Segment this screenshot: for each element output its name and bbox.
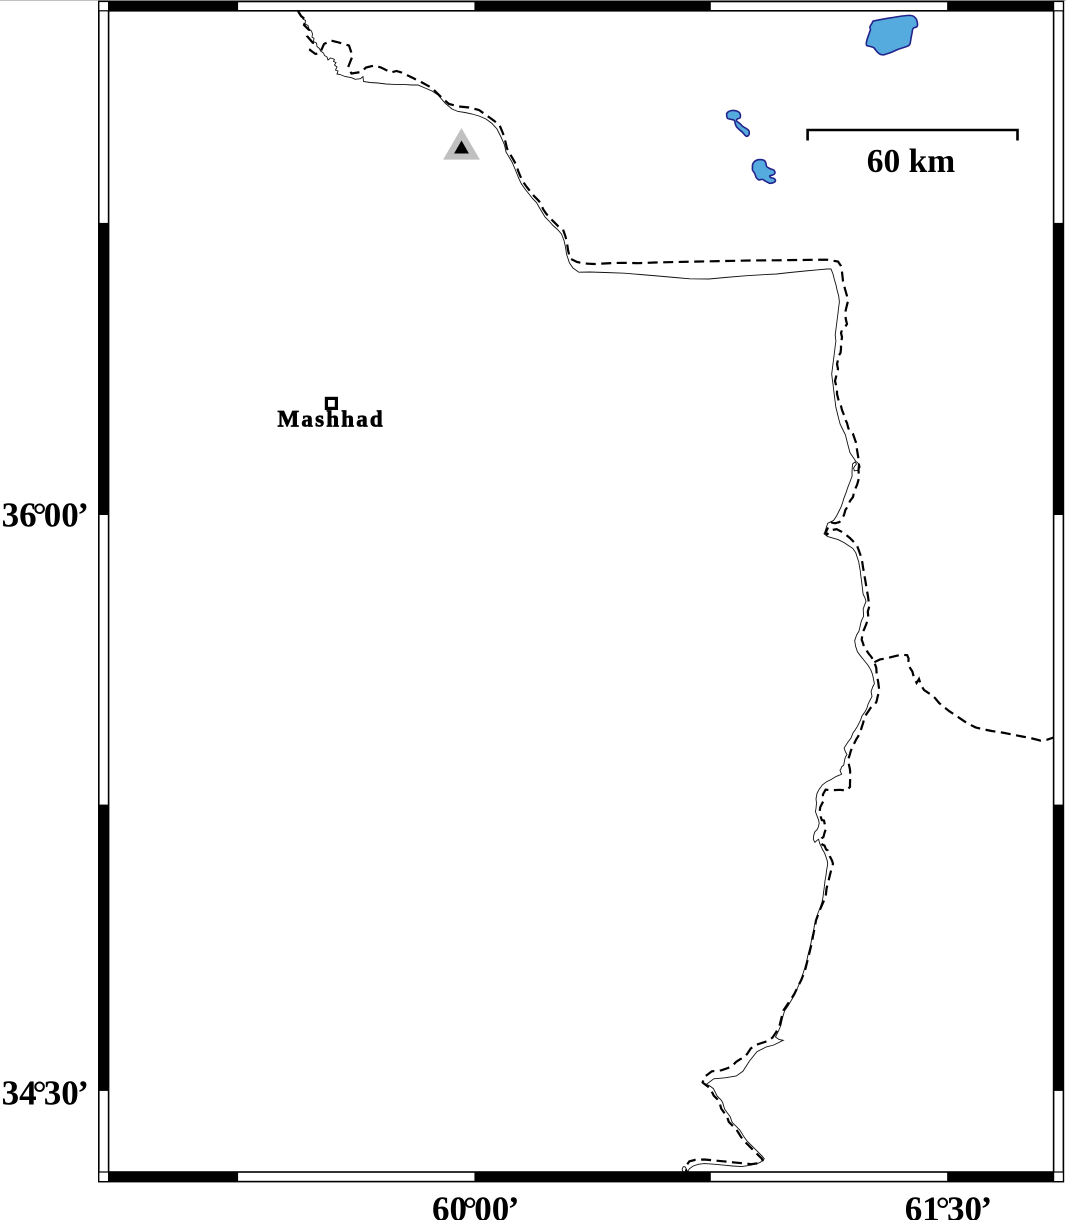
svg-text:36°00’: 36°00’ xyxy=(2,496,89,535)
svg-text:Mashhad: Mashhad xyxy=(277,407,384,432)
svg-text:61°30’: 61°30’ xyxy=(905,1189,992,1220)
svg-text:60°00’: 60°00’ xyxy=(432,1189,519,1220)
svg-text:60 km: 60 km xyxy=(867,143,956,180)
svg-text:34°30’: 34°30’ xyxy=(2,1074,89,1113)
